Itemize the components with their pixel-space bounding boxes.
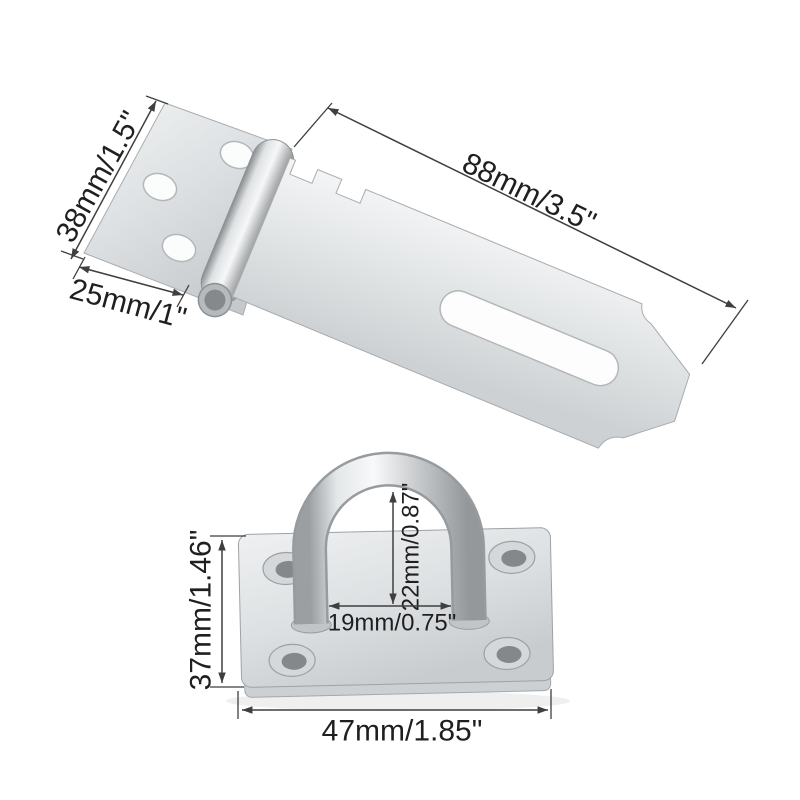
dimension-37mm: 37mm/1.46" [185,530,247,691]
countersunk-hole [484,637,531,670]
dimension-diagram: 38mm/1.5" 25mm/1" 88mm/3.5" [0,0,800,800]
hasp-latch-figure: 38mm/1.5" 25mm/1" 88mm/3.5" [50,96,748,496]
dim-label-88mm: 88mm/3.5" [457,147,601,240]
countersunk-hole [269,644,316,677]
staple-figure: 37mm/1.46" 47mm/1.85" 22mm/0.87" 19mm/0.… [185,465,571,747]
product-image: 38mm/1.5" 25mm/1" 88mm/3.5" [0,0,800,800]
dim-label-22mm: 22mm/0.87" [398,483,425,612]
dim-label-37mm: 37mm/1.46" [185,530,218,691]
dimension-22mm: 22mm/0.87" [393,483,425,612]
countersunk-hole [488,541,535,574]
dim-label-19mm: 19mm/0.75" [328,610,457,637]
dim-label-47mm: 47mm/1.85" [322,715,483,748]
dimension-19mm: 19mm/0.75" [328,606,457,637]
